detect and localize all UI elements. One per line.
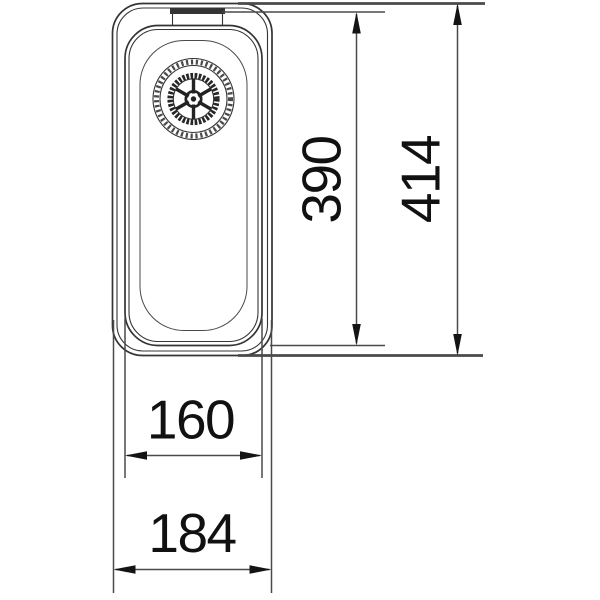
dim-label-inner-length: 390 xyxy=(291,136,353,223)
arrow-up-icon xyxy=(352,12,361,34)
arrow-down-icon xyxy=(453,334,462,356)
sink-outline xyxy=(113,4,273,356)
dim-outer-length: 414 xyxy=(238,4,485,356)
arrow-up-icon xyxy=(453,4,462,26)
dim-label-outer-length: 414 xyxy=(390,136,452,223)
drain-strainer-icon xyxy=(153,59,234,140)
sink-technical-drawing: 390 414 160 184 xyxy=(0,0,600,600)
dim-label-outer-width: 184 xyxy=(148,502,235,564)
drawing-svg: 390 414 160 184 xyxy=(0,0,600,600)
arrow-left-icon xyxy=(125,451,147,460)
arrow-left-icon xyxy=(114,565,136,574)
arrow-down-icon xyxy=(352,324,361,346)
arrow-right-icon xyxy=(240,451,262,460)
overflow-slot xyxy=(170,8,225,27)
arrow-right-icon xyxy=(250,565,272,574)
flange-outer-line xyxy=(113,4,273,356)
dim-label-inner-width: 160 xyxy=(147,389,234,451)
